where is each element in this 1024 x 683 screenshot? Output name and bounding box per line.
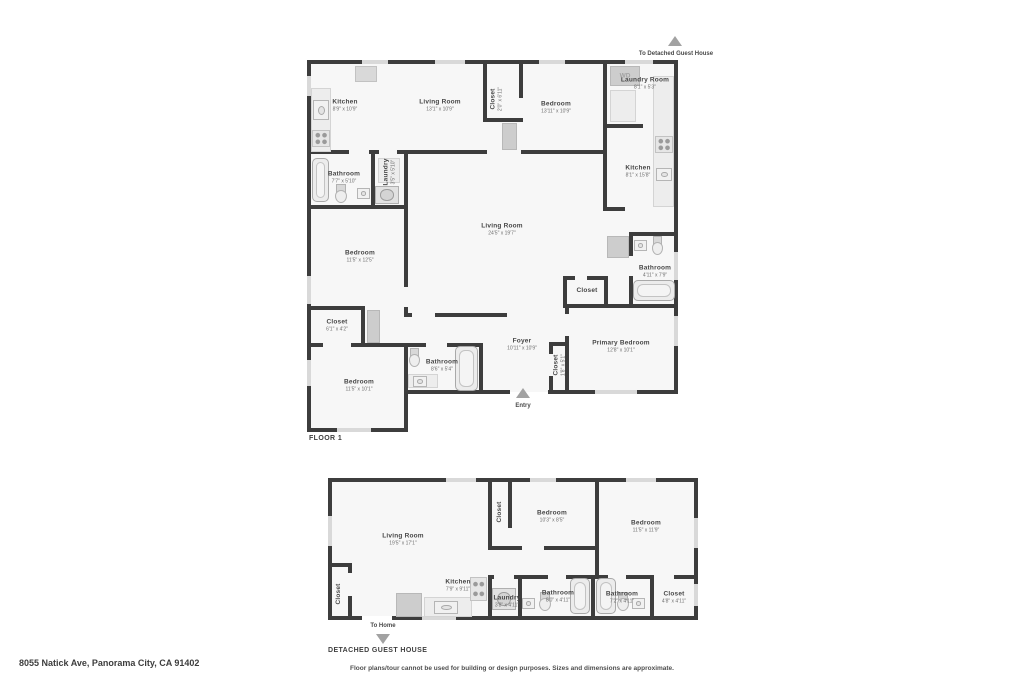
room-dims: 2'0" x 6'11" — [498, 87, 505, 111]
room-label-kitchen-right: Kitchen 8'1" x 15'8" — [625, 165, 650, 180]
wall-segment — [404, 343, 426, 347]
wall-segment — [512, 546, 522, 550]
room-dims: 13'1" x 10'9" — [419, 107, 461, 114]
arrow-down-icon — [376, 634, 390, 644]
room-label-foyer: Foyer 10'11" x 10'9" — [507, 338, 537, 353]
room-dims: 13'11" x 10'9" — [541, 109, 571, 116]
window-marker — [674, 252, 678, 280]
wall-segment — [348, 563, 352, 573]
room-name: Kitchen — [332, 99, 357, 107]
entry-arrow-up-icon — [516, 388, 530, 398]
wall-segment — [348, 596, 352, 620]
arrow-up-icon — [668, 36, 682, 46]
wall-segment — [650, 575, 654, 620]
room-name: Living Room — [382, 533, 424, 541]
wall-segment — [307, 343, 323, 347]
room-label-gh-bathroom-2: Bathroom 7'2" x 4'11" — [606, 591, 638, 606]
window-marker — [337, 428, 371, 432]
wall-segment — [544, 546, 599, 550]
room-dims: 11'5" x 11'9" — [631, 528, 661, 535]
room-dims: 7'7" x 5'10" — [328, 179, 360, 186]
to-guest-house-label: To Detached Guest House — [625, 51, 727, 57]
room-dims: 4'8" x 4'11" — [662, 599, 686, 606]
guest-house-caption: DETACHED GUEST HOUSE — [328, 647, 427, 654]
wall-segment — [328, 616, 362, 620]
room-name: Laundry — [493, 595, 520, 603]
room-name: Kitchen — [445, 579, 470, 587]
room-dims: 8'0" x 4'11" — [542, 598, 574, 605]
wall-segment — [563, 304, 678, 308]
room-dims: 4'11" x 7'9" — [639, 273, 671, 280]
room-name: Foyer — [507, 338, 537, 346]
wall-segment — [351, 343, 404, 347]
sink — [656, 168, 672, 181]
room-name: Bathroom — [542, 590, 574, 598]
toilet — [408, 348, 421, 367]
sink — [634, 240, 647, 251]
wall-segment — [435, 313, 507, 317]
room-name: Bathroom — [328, 171, 360, 179]
wall-segment — [361, 306, 365, 347]
wall-segment — [519, 60, 523, 98]
room-label-closet-foyer: Closet 1'8" x 5'1" — [553, 354, 568, 376]
room-dims: 19'5" x 17'1" — [382, 541, 424, 548]
room-label-bathroom-bottom: Bathroom 8'6" x 5'4" — [426, 359, 458, 374]
bathtub — [455, 346, 478, 391]
stove — [470, 577, 487, 601]
wall-segment — [508, 478, 512, 528]
stove — [655, 136, 673, 153]
room-dims: 11'5" x 10'1" — [344, 387, 374, 394]
floor1-caption: FLOOR 1 — [309, 435, 342, 442]
disclaimer-text: Floor plans/tour cannot be used for buil… — [262, 665, 762, 672]
room-dims: 11'5" x 12'5" — [345, 258, 375, 265]
room-dims: 1'8" x 5'1" — [561, 354, 568, 376]
sink — [413, 376, 427, 387]
sink — [434, 601, 458, 614]
wall-segment — [307, 306, 365, 310]
entry-label: Entry — [503, 403, 543, 409]
property-address: 8055 Natick Ave, Panorama City, CA 91402 — [19, 658, 199, 668]
wall-segment — [591, 575, 595, 620]
floorplan-canvas: Kitchen 8'9" x 10'9" Living Room 13'1" x… — [0, 0, 1024, 683]
room-dims: 10'3" x 8'5" — [537, 518, 567, 525]
room-dims: 7'9" x 9'11" — [445, 587, 470, 594]
wall-segment — [483, 118, 523, 122]
room-dims: 3'5" x 5'10" — [391, 158, 398, 185]
wall-segment — [607, 124, 643, 128]
room-name: Bathroom — [426, 359, 458, 367]
washer — [375, 186, 399, 204]
room-name: Bedroom — [344, 379, 374, 387]
room-name: Closet — [662, 591, 686, 599]
window-marker — [362, 60, 388, 64]
wall-segment — [488, 546, 512, 550]
cabinet — [396, 593, 422, 617]
window-marker — [694, 518, 698, 548]
wall-segment — [397, 150, 487, 154]
stove — [312, 130, 330, 147]
room-name: Closet — [553, 354, 561, 376]
wall-segment — [404, 313, 412, 317]
room-dims: 8'9" x 10'9" — [332, 107, 357, 114]
room-dims: 24'5" x 19'7" — [481, 231, 523, 238]
to-home-label: To Home — [360, 623, 406, 629]
room-label-closet-center: Closet — [576, 287, 597, 295]
wall-segment — [479, 343, 483, 394]
window-marker — [539, 60, 565, 64]
room-label-kitchen-main: Kitchen 8'9" x 10'9" — [332, 99, 357, 114]
window-marker — [674, 316, 678, 346]
room-name: Living Room — [481, 223, 523, 231]
wall-segment — [307, 205, 408, 209]
room-label-gh-laundry: Laundry 3'8" x 4'11" — [493, 595, 520, 610]
room-label-bathroom-right: Bathroom 4'11" x 7'9" — [639, 265, 671, 280]
window-marker — [435, 60, 465, 64]
window-marker — [595, 390, 637, 394]
room-name: Laundry — [383, 158, 391, 185]
room-dims: 3'8" x 4'11" — [493, 603, 520, 610]
room-label-gh-living: Living Room 19'5" x 17'1" — [382, 533, 424, 548]
toilet — [651, 236, 664, 255]
room-label-bedroom-top: Bedroom 13'11" x 10'9" — [541, 101, 571, 116]
window-marker — [328, 516, 332, 546]
room-name: Closet — [576, 287, 597, 295]
cabinet — [607, 236, 629, 258]
room-name: Closet — [326, 319, 348, 327]
wall-segment — [404, 150, 408, 287]
room-name: Bedroom — [631, 520, 661, 528]
room-dims: 6'1" x 4'2" — [326, 327, 348, 334]
room-label-bedroom-bottom: Bedroom 11'5" x 10'1" — [344, 379, 374, 394]
wall-segment — [565, 308, 569, 314]
appliance — [355, 66, 377, 82]
room-dims: 8'1" x 15'8" — [625, 173, 650, 180]
wall-segment — [549, 376, 553, 392]
window-marker — [307, 360, 311, 386]
room-label-closet-left: Closet 6'1" x 4'2" — [326, 319, 348, 334]
wall-segment — [549, 342, 553, 354]
wall-segment — [328, 478, 332, 620]
counter — [610, 90, 636, 122]
room-name: Bedroom — [541, 101, 571, 109]
room-label-gh-closet-left: Closet — [335, 583, 343, 604]
room-dims: 8'6" x 5'4" — [426, 367, 458, 374]
room-name: Closet — [496, 501, 504, 522]
wall-segment — [483, 60, 487, 122]
room-name: Bedroom — [537, 510, 567, 518]
room-name: Kitchen — [625, 165, 650, 173]
room-name: Bathroom — [606, 591, 638, 599]
room-name: Bathroom — [639, 265, 671, 273]
room-label-gh-bedroom-2: Bedroom 11'5" x 11'9" — [631, 520, 661, 535]
wall-segment — [595, 478, 599, 579]
room-dims: 10'11" x 10'9" — [507, 346, 537, 353]
room-label-living-top: Living Room 13'1" x 10'9" — [419, 99, 461, 114]
window-marker — [626, 478, 656, 482]
room-name: Closet — [490, 87, 498, 111]
room-label-gh-kitchen: Kitchen 7'9" x 9'11" — [445, 579, 470, 594]
room-label-gh-bedroom-1: Bedroom 10'3" x 8'5" — [537, 510, 567, 525]
room-name: Primary Bedroom — [592, 340, 650, 348]
room-dims: 8'1" x 5'3" — [621, 85, 669, 92]
window-marker — [446, 478, 476, 482]
wall-segment — [607, 207, 625, 211]
room-label-gh-bathroom-1: Bathroom 8'0" x 4'11" — [542, 590, 574, 605]
bathtub — [312, 158, 329, 202]
window-marker — [530, 478, 556, 482]
room-label-gh-closet-right: Closet 4'8" x 4'11" — [662, 591, 686, 606]
room-label-primary-bedroom: Primary Bedroom 12'8" x 10'1" — [592, 340, 650, 355]
room-label-bathroom-left: Bathroom 7'7" x 5'10" — [328, 171, 360, 186]
room-name: Closet — [335, 583, 343, 604]
cabinet — [367, 310, 380, 343]
wall-segment — [603, 60, 607, 211]
washer-dryer-label: WD — [620, 73, 631, 80]
wall-segment — [521, 150, 607, 154]
cabinet — [502, 123, 517, 150]
sink — [522, 598, 535, 609]
room-label-closet-top: Closet 2'0" x 6'11" — [490, 87, 505, 111]
wall-segment — [563, 276, 567, 308]
toilet — [334, 184, 348, 203]
window-marker — [694, 584, 698, 606]
room-dims: 7'2" x 4'11" — [606, 599, 638, 606]
wall-segment — [674, 575, 696, 579]
wall-segment — [404, 390, 510, 394]
room-label-laundry-left: Laundry 3'5" x 5'10" — [383, 158, 398, 185]
sink — [357, 188, 370, 199]
room-dims: 12'8" x 10'1" — [592, 348, 650, 355]
wall-segment — [604, 276, 608, 308]
wall-segment — [629, 232, 633, 256]
room-name: Bedroom — [345, 250, 375, 258]
sink — [313, 100, 329, 120]
window-marker — [625, 60, 653, 64]
bathtub — [633, 280, 675, 301]
room-label-living-main: Living Room 24'5" x 19'7" — [481, 223, 523, 238]
window-marker — [307, 276, 311, 304]
room-label-bedroom-mid: Bedroom 11'5" x 12'5" — [345, 250, 375, 265]
room-name: Living Room — [419, 99, 461, 107]
wall-segment — [488, 478, 492, 550]
room-label-gh-closet-mid: Closet — [496, 501, 504, 522]
